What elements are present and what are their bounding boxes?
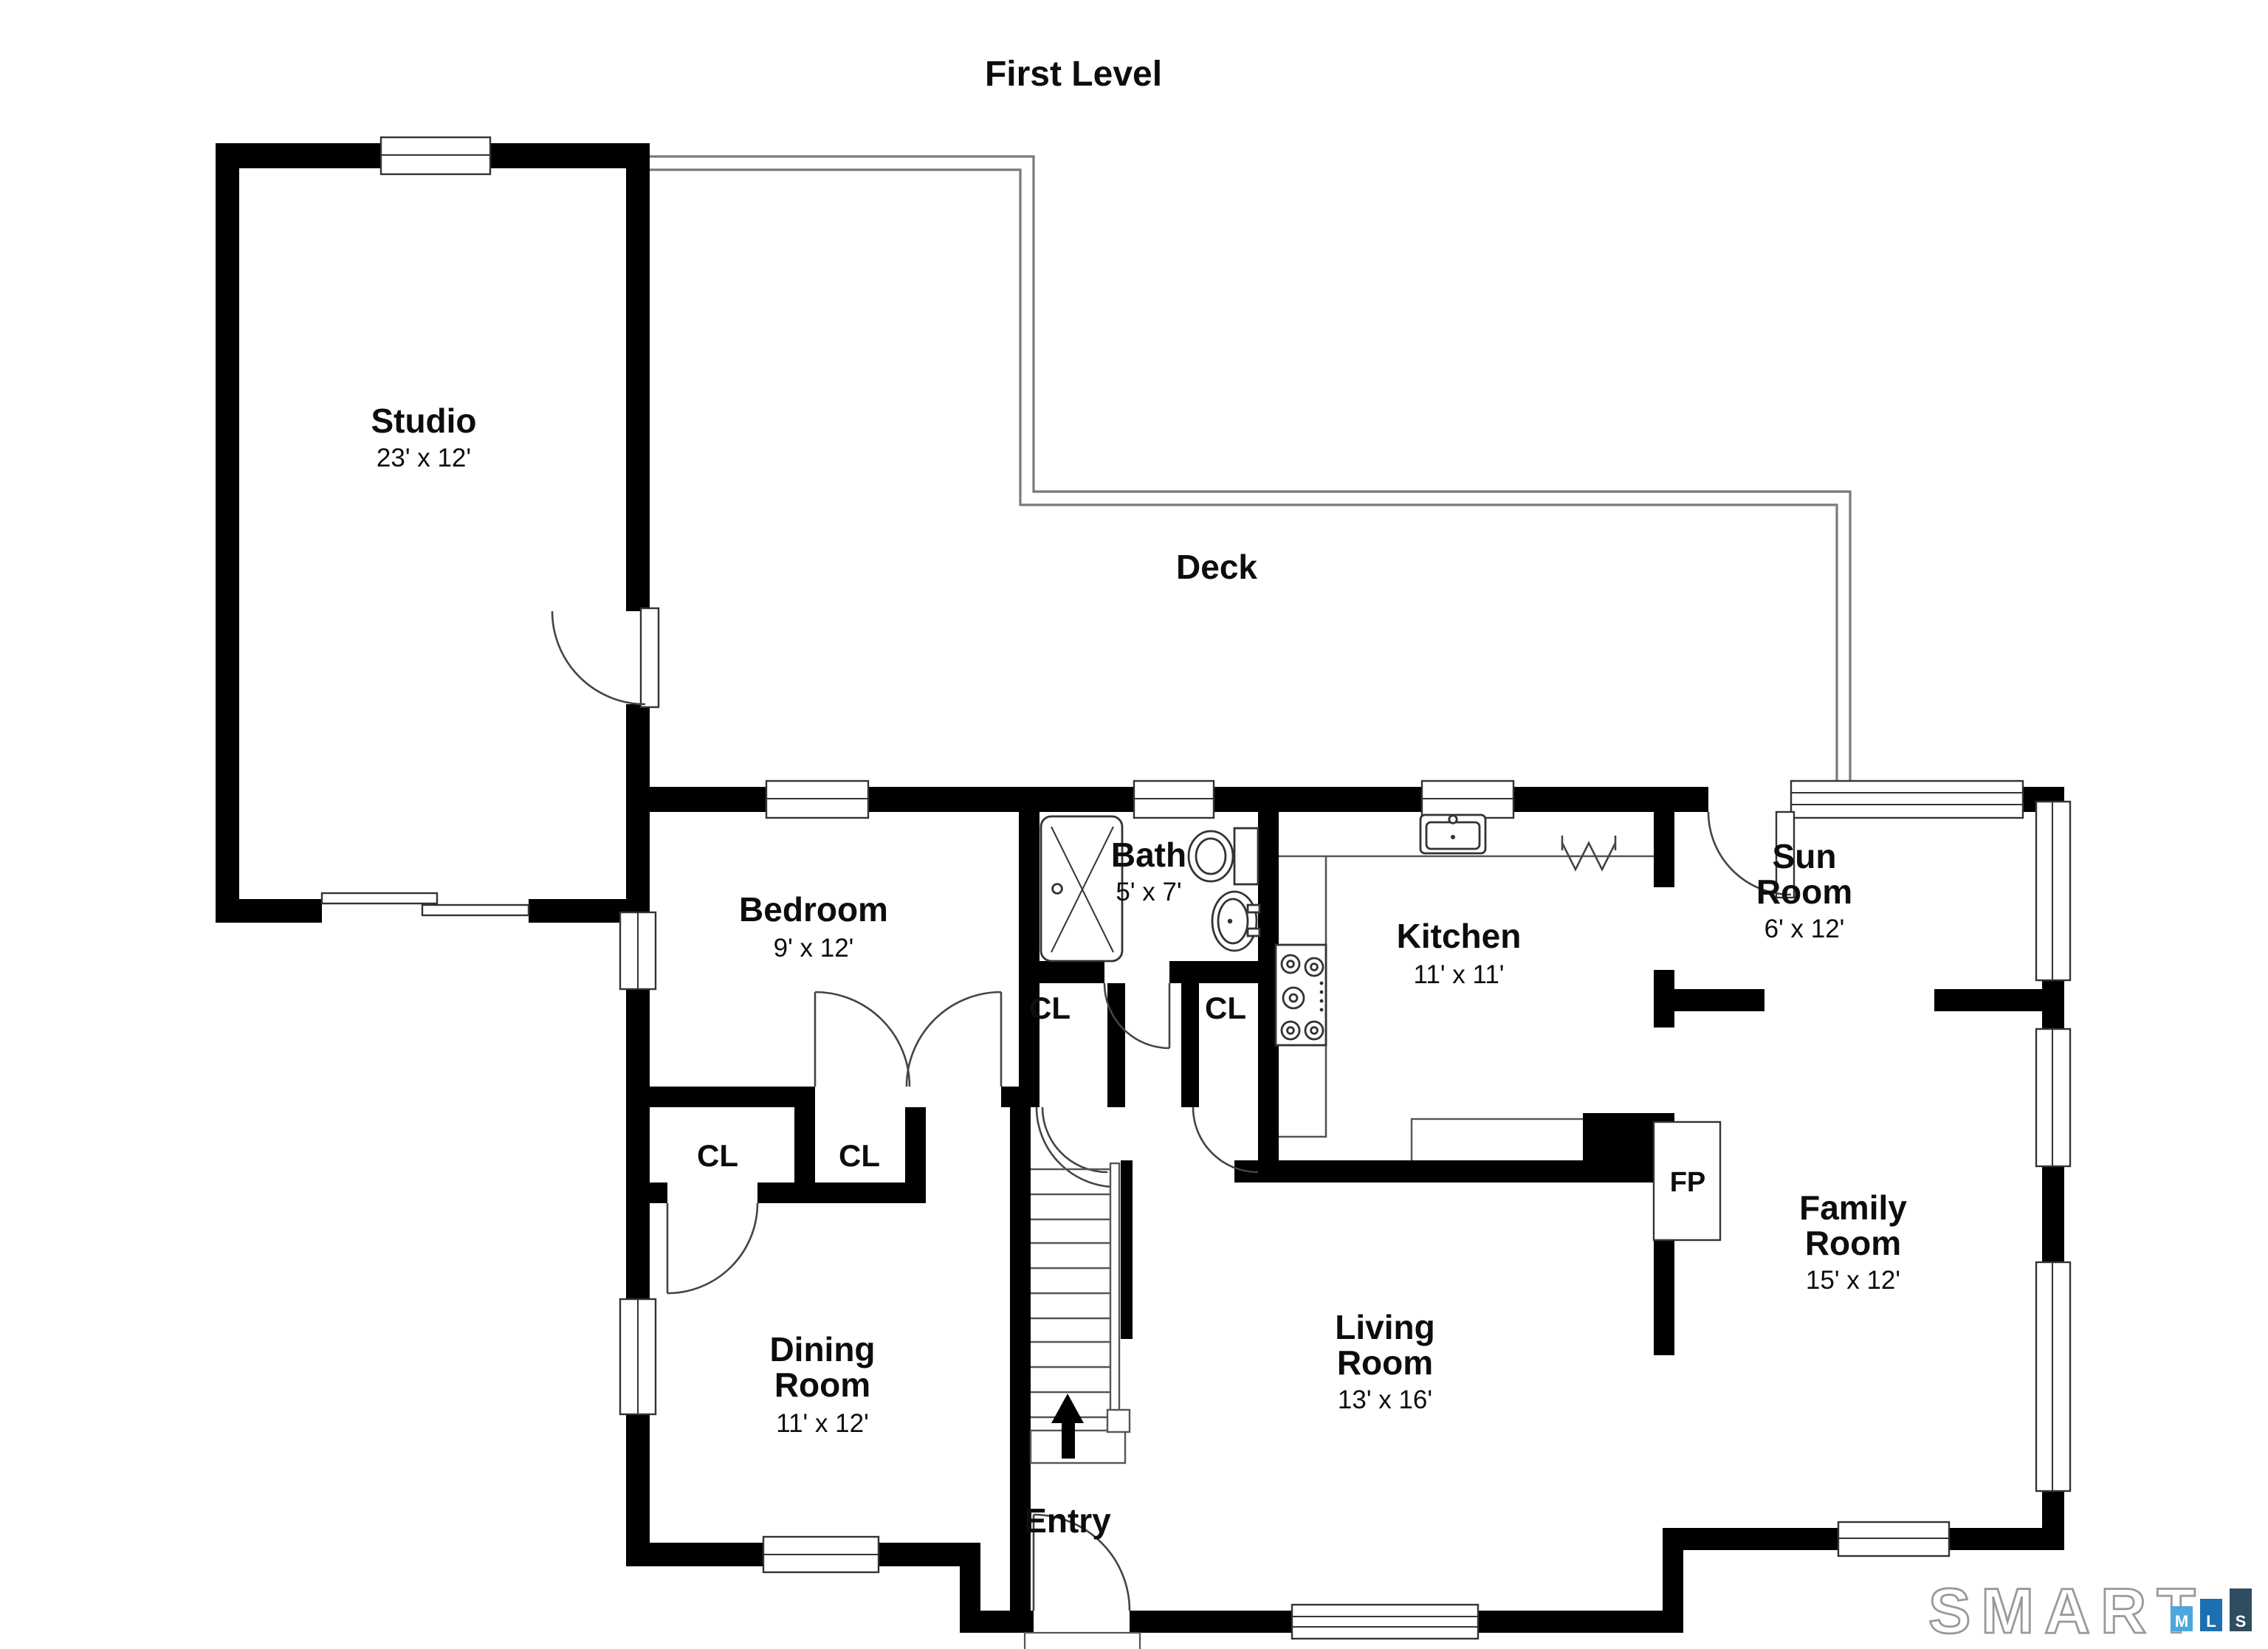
svg-text:15' x 12': 15' x 12' [1806,1266,1900,1295]
svg-text:Family: Family [1799,1188,1907,1227]
svg-text:Room: Room [1756,872,1852,911]
kitchen-sink-icon [1420,815,1485,853]
bedroom-top-window [766,781,868,818]
floor-plan: FP First Level Studio 23' x 12' Deck Bed… [0,0,2268,1649]
svg-text:Room: Room [1805,1224,1901,1262]
svg-text:Room: Room [1337,1343,1433,1382]
toilet-icon [1189,828,1258,884]
logo-bar-l: L [2200,1599,2222,1631]
svg-text:9' x 12': 9' x 12' [774,934,854,963]
room-label-kitchen: Kitchen 11' x 11' [1397,917,1522,989]
room-label-studio: Studio 23' x 12' [371,402,476,472]
sunroom-top-window [1791,781,2023,818]
stair-landing [1031,1431,1125,1463]
stair-newel-post [1107,1410,1130,1432]
svg-text:13' x 16': 13' x 16' [1338,1385,1432,1414]
living-bottom-window [1292,1605,1478,1639]
room-label-family: Family Room 15' x 12' [1799,1188,1907,1295]
logo-wordmark: SMART [1928,1576,2206,1647]
svg-text:Entry: Entry [1024,1501,1111,1540]
entry-stoop [1025,1633,1140,1649]
bath-top-window [1134,781,1214,818]
svg-text:Sun: Sun [1773,837,1837,875]
fireplace: FP [1654,1122,1720,1240]
stove-icon [1276,945,1326,1045]
logo-bar-m: M [2171,1606,2193,1631]
smartmls-logo: SMART M L S [1928,1576,2252,1647]
closet-label-dining-right: CL [839,1138,880,1173]
dining-bottom-window [763,1537,879,1572]
room-label-entry: Entry [1024,1501,1111,1540]
family-bottom-window [1838,1522,1949,1556]
svg-text:23' x 12': 23' x 12' [377,444,471,472]
svg-text:Bedroom: Bedroom [739,890,888,929]
svg-text:L: L [2206,1612,2216,1631]
svg-text:M: M [2175,1612,2188,1631]
closet-label-hall-left: CL [1029,991,1071,1025]
room-label-deck: Deck [1176,548,1257,586]
fireplace-label: FP [1670,1167,1706,1198]
fireplace-chimney [1583,1113,1654,1182]
svg-text:Deck: Deck [1176,548,1257,586]
family-right-window-2 [2036,1262,2070,1491]
shower-icon [1041,816,1122,961]
sunroom-right-window [2036,802,2070,980]
room-label-dining: Dining Room 11' x 12' [769,1330,875,1438]
closet-label-hall-right: CL [1205,991,1246,1025]
page-title: First Level [985,55,1162,94]
page-background [0,0,2268,1649]
svg-text:11' x 11': 11' x 11' [1414,960,1505,989]
svg-text:S: S [2236,1612,2247,1631]
svg-text:5' x 7': 5' x 7' [1116,878,1181,906]
svg-text:Studio: Studio [371,402,476,440]
svg-text:Living: Living [1335,1308,1434,1346]
svg-text:Dining: Dining [769,1330,875,1369]
room-label-living: Living Room 13' x 16' [1335,1308,1434,1414]
svg-text:Room: Room [774,1366,870,1404]
studio-top-window [381,137,490,174]
closet-label-dining-left: CL [697,1138,738,1173]
family-right-window-1 [2036,1029,2070,1166]
logo-bar-s: S [2230,1588,2252,1631]
kitchen-top-window [1422,781,1513,818]
stair-stringer [1110,1163,1119,1429]
svg-text:Kitchen: Kitchen [1397,917,1522,955]
bedroom-left-window [620,912,656,989]
dining-left-window [620,1299,656,1414]
room-label-bath: Bath 5' x 7' [1111,836,1186,906]
svg-text:11' x 12': 11' x 12' [776,1409,869,1438]
svg-text:Bath: Bath [1111,836,1186,874]
svg-text:6' x 12': 6' x 12' [1764,915,1845,943]
